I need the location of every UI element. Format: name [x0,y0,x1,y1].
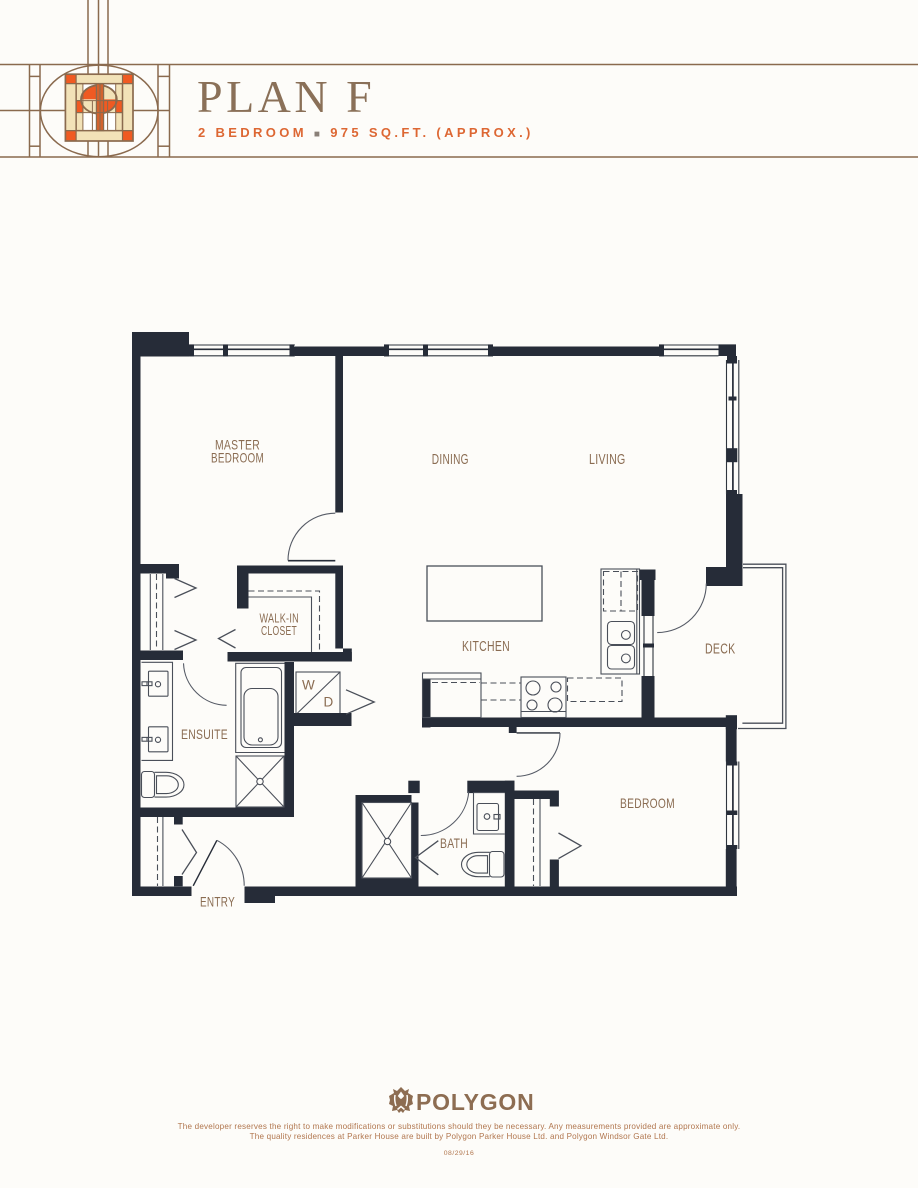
svg-text:DECK: DECK [705,642,736,658]
svg-text:KITCHEN: KITCHEN [462,639,510,655]
svg-text:DINING: DINING [432,452,469,468]
svg-text:BEDROOM: BEDROOM [211,450,264,466]
svg-text:LIVING: LIVING [589,452,626,468]
svg-text:BEDROOM: BEDROOM [620,795,675,811]
svg-text:ENTRY: ENTRY [200,894,235,910]
svg-text:W: W [302,677,315,692]
svg-text:ENSUITE: ENSUITE [181,726,228,742]
svg-text:BATH: BATH [440,835,468,851]
svg-text:D: D [324,695,334,710]
svg-text:CLOSET: CLOSET [261,624,297,638]
